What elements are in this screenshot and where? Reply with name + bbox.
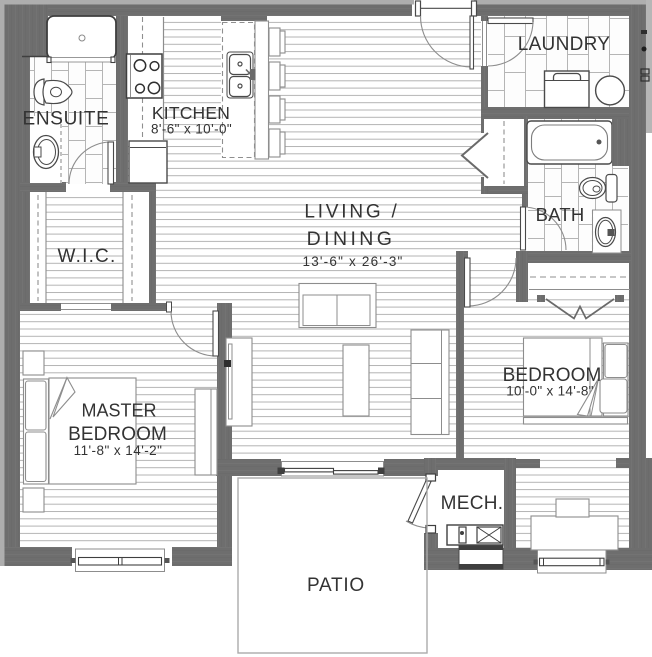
svg-text:BEDROOM: BEDROOM: [68, 424, 167, 445]
svg-text:PATIO: PATIO: [307, 575, 365, 596]
svg-text:10'-0" x 14'-8": 10'-0" x 14'-8": [506, 384, 594, 399]
svg-text:ENSUITE: ENSUITE: [23, 109, 110, 130]
svg-text:11'-8" x 14'-2": 11'-8" x 14'-2": [74, 443, 163, 458]
svg-text:13'-6" x 26'-3": 13'-6" x 26'-3": [302, 254, 403, 269]
svg-text:MECH.: MECH.: [441, 493, 504, 514]
svg-text:LAUNDRY: LAUNDRY: [518, 34, 611, 55]
svg-text:BATH: BATH: [536, 204, 585, 225]
svg-text:LIVING /: LIVING /: [304, 202, 399, 223]
svg-text:DINING: DINING: [307, 228, 396, 250]
svg-text:KITCHEN: KITCHEN: [152, 103, 230, 123]
svg-text:MASTER: MASTER: [81, 401, 156, 421]
svg-text:8'-6" x 10'-0": 8'-6" x 10'-0": [151, 122, 232, 137]
svg-text:W.I.C.: W.I.C.: [58, 246, 117, 267]
